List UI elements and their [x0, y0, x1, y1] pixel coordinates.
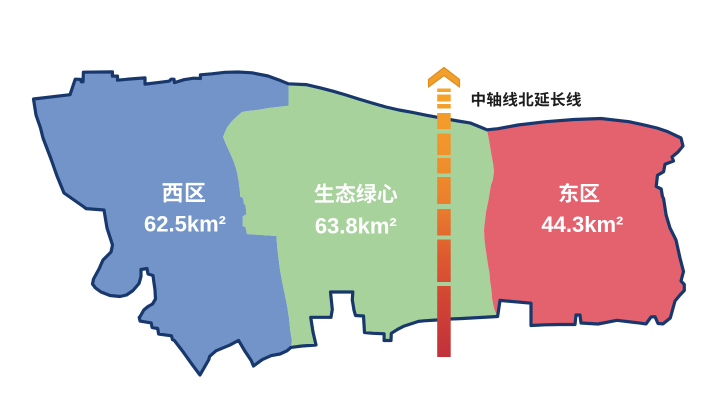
- svg-text:44.3km²: 44.3km²: [541, 212, 623, 237]
- svg-text:62.5km²: 62.5km²: [144, 212, 226, 237]
- svg-text:63.8km²: 63.8km²: [315, 214, 397, 239]
